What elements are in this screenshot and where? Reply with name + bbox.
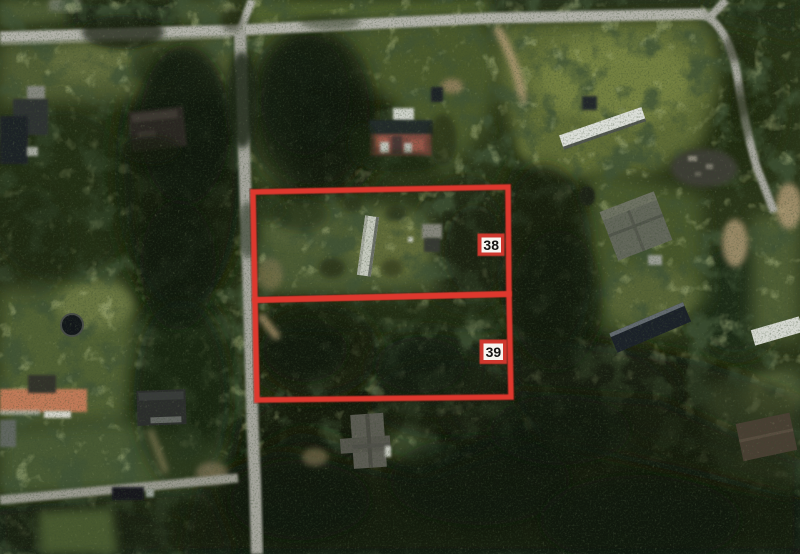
svg-text:38: 38 <box>483 237 499 253</box>
svg-text:39: 39 <box>486 344 502 360</box>
